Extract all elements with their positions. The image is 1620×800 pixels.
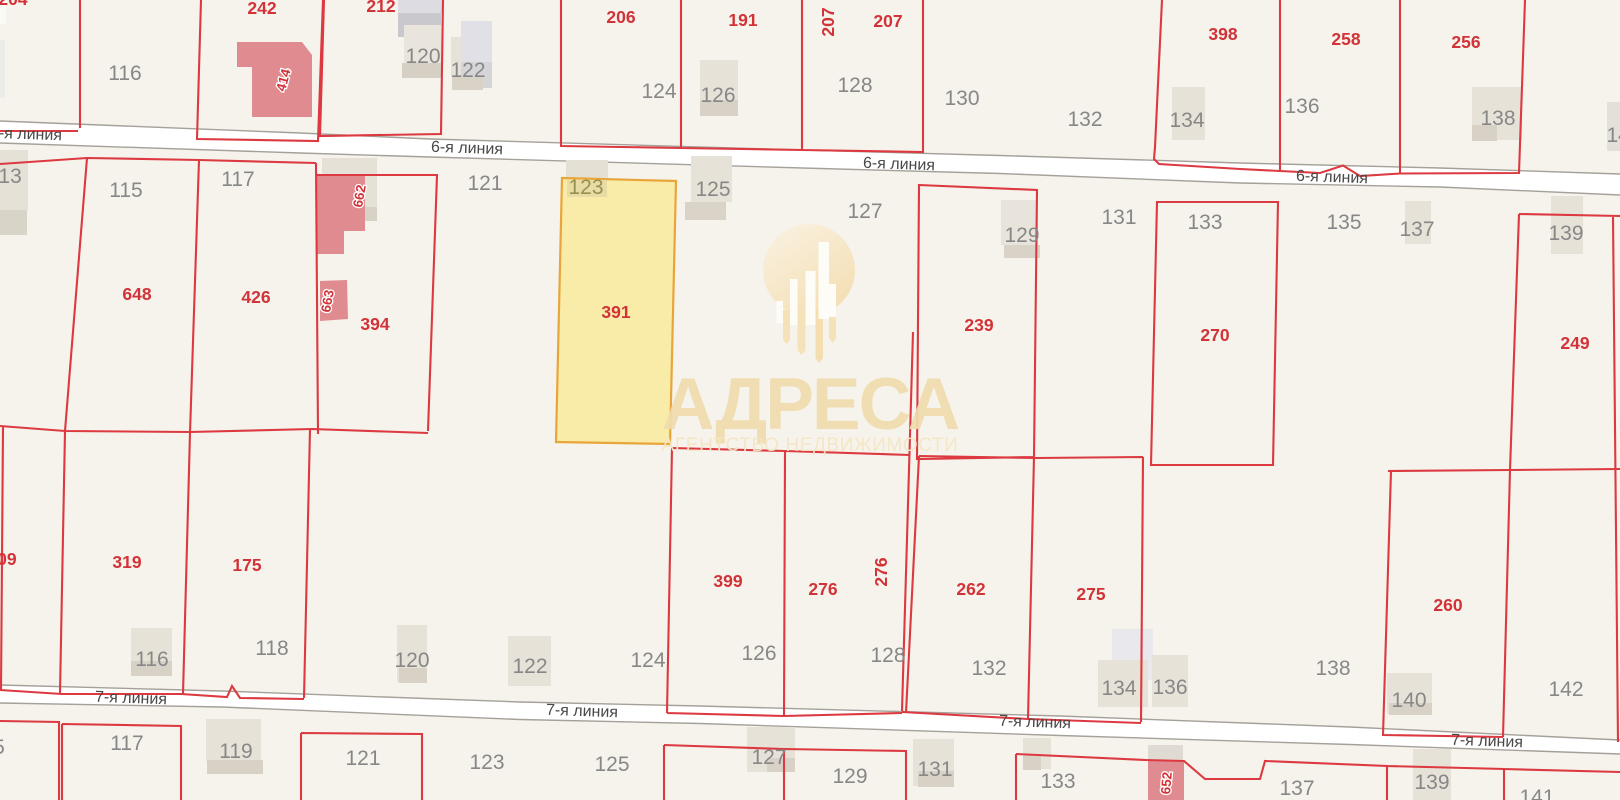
svg-text:256: 256 <box>1451 32 1480 52</box>
svg-text:137: 137 <box>1399 218 1434 241</box>
svg-text:6-я линия: 6-я линия <box>1296 168 1369 188</box>
svg-text:249: 249 <box>1560 333 1589 353</box>
svg-text:124: 124 <box>641 80 676 103</box>
svg-text:426: 426 <box>241 287 270 307</box>
svg-text:132: 132 <box>971 657 1006 680</box>
svg-text:130: 130 <box>944 87 979 110</box>
svg-text:116: 116 <box>108 62 141 85</box>
svg-text:134: 134 <box>1169 109 1204 132</box>
svg-text:394: 394 <box>360 314 389 334</box>
svg-text:409: 409 <box>0 549 17 569</box>
svg-text:127: 127 <box>847 200 882 223</box>
svg-text:116: 116 <box>135 648 168 671</box>
svg-text:127: 127 <box>751 746 786 769</box>
svg-text:7-я линия: 7-я линия <box>546 702 619 722</box>
svg-text:7-я линия: 7-я линия <box>999 713 1072 733</box>
svg-text:6-я линия: 6-я линия <box>0 125 62 145</box>
svg-text:119: 119 <box>219 740 252 763</box>
svg-text:207: 207 <box>873 11 902 31</box>
svg-text:191: 191 <box>728 10 757 30</box>
svg-text:6-я линия: 6-я линия <box>431 139 504 159</box>
svg-text:АДРЕСА: АДРЕСА <box>662 364 959 445</box>
svg-text:319: 319 <box>112 552 141 572</box>
svg-text:262: 262 <box>956 579 985 599</box>
svg-text:113: 113 <box>0 165 22 188</box>
svg-text:275: 275 <box>1076 584 1105 604</box>
svg-text:115: 115 <box>109 179 142 202</box>
svg-text:117: 117 <box>221 168 254 191</box>
svg-text:131: 131 <box>1101 206 1136 229</box>
svg-text:138: 138 <box>1315 657 1350 680</box>
svg-text:7-я линия: 7-я линия <box>1451 732 1524 752</box>
svg-text:125: 125 <box>695 178 730 201</box>
svg-text:207: 207 <box>818 7 838 36</box>
svg-text:204: 204 <box>0 0 28 9</box>
svg-text:276: 276 <box>808 579 837 599</box>
svg-text:121: 121 <box>345 747 380 770</box>
svg-text:136: 136 <box>1152 676 1187 699</box>
svg-text:126: 126 <box>700 84 735 107</box>
svg-text:142: 142 <box>1548 678 1583 701</box>
svg-text:120: 120 <box>394 649 429 672</box>
svg-text:242: 242 <box>247 0 276 18</box>
svg-text:133: 133 <box>1040 770 1075 793</box>
svg-text:260: 260 <box>1433 595 1462 615</box>
svg-text:139: 139 <box>1414 771 1449 794</box>
svg-text:128: 128 <box>870 644 905 667</box>
svg-text:123: 123 <box>469 751 504 774</box>
svg-text:175: 175 <box>232 555 261 575</box>
svg-text:122: 122 <box>450 59 485 82</box>
svg-text:125: 125 <box>594 753 629 776</box>
svg-text:139: 139 <box>1548 222 1583 245</box>
svg-text:206: 206 <box>606 7 635 27</box>
svg-text:131: 131 <box>917 758 952 781</box>
svg-text:132: 132 <box>1067 108 1102 131</box>
svg-text:138: 138 <box>1480 107 1515 130</box>
svg-text:137: 137 <box>1279 777 1314 800</box>
svg-text:652: 652 <box>1158 771 1175 795</box>
svg-text:134: 134 <box>1101 677 1136 700</box>
svg-text:121: 121 <box>467 172 502 195</box>
svg-text:122: 122 <box>512 655 547 678</box>
svg-text:270: 270 <box>1200 325 1229 345</box>
svg-text:АГЕНТСТВО НЕДВИЖИМОСТИ: АГЕНТСТВО НЕДВИЖИМОСТИ <box>662 435 959 456</box>
svg-text:129: 129 <box>1004 224 1039 247</box>
svg-text:276: 276 <box>871 557 891 586</box>
svg-text:258: 258 <box>1331 29 1360 49</box>
svg-text:399: 399 <box>713 571 742 591</box>
svg-text:648: 648 <box>122 284 151 304</box>
svg-text:118: 118 <box>255 637 288 660</box>
svg-text:115: 115 <box>0 736 5 759</box>
svg-text:129: 129 <box>832 765 867 788</box>
svg-text:140: 140 <box>1391 689 1426 712</box>
svg-text:141: 141 <box>1519 786 1554 800</box>
svg-text:239: 239 <box>964 315 993 335</box>
svg-text:124: 124 <box>630 649 665 672</box>
svg-text:144: 144 <box>1606 124 1620 147</box>
svg-text:6-я линия: 6-я линия <box>863 155 936 175</box>
svg-text:212: 212 <box>366 0 395 16</box>
svg-text:123: 123 <box>568 176 603 199</box>
svg-text:117: 117 <box>110 732 143 755</box>
svg-text:126: 126 <box>741 642 776 665</box>
svg-text:136: 136 <box>1284 95 1319 118</box>
svg-text:398: 398 <box>1208 24 1237 44</box>
svg-text:128: 128 <box>837 74 872 97</box>
svg-text:120: 120 <box>405 45 440 68</box>
svg-text:135: 135 <box>1326 211 1361 234</box>
svg-text:391: 391 <box>601 302 630 322</box>
svg-text:7-я линия: 7-я линия <box>95 689 168 709</box>
svg-text:133: 133 <box>1187 211 1222 234</box>
